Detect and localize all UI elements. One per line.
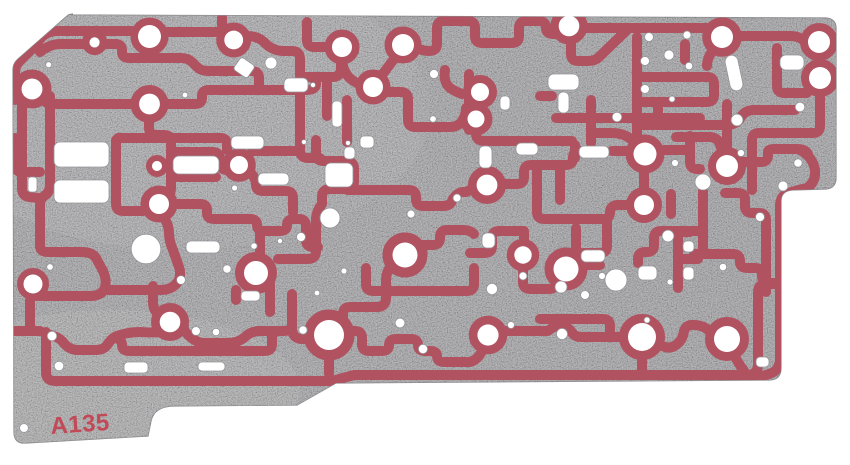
svg-text:A135: A135 <box>50 409 111 440</box>
